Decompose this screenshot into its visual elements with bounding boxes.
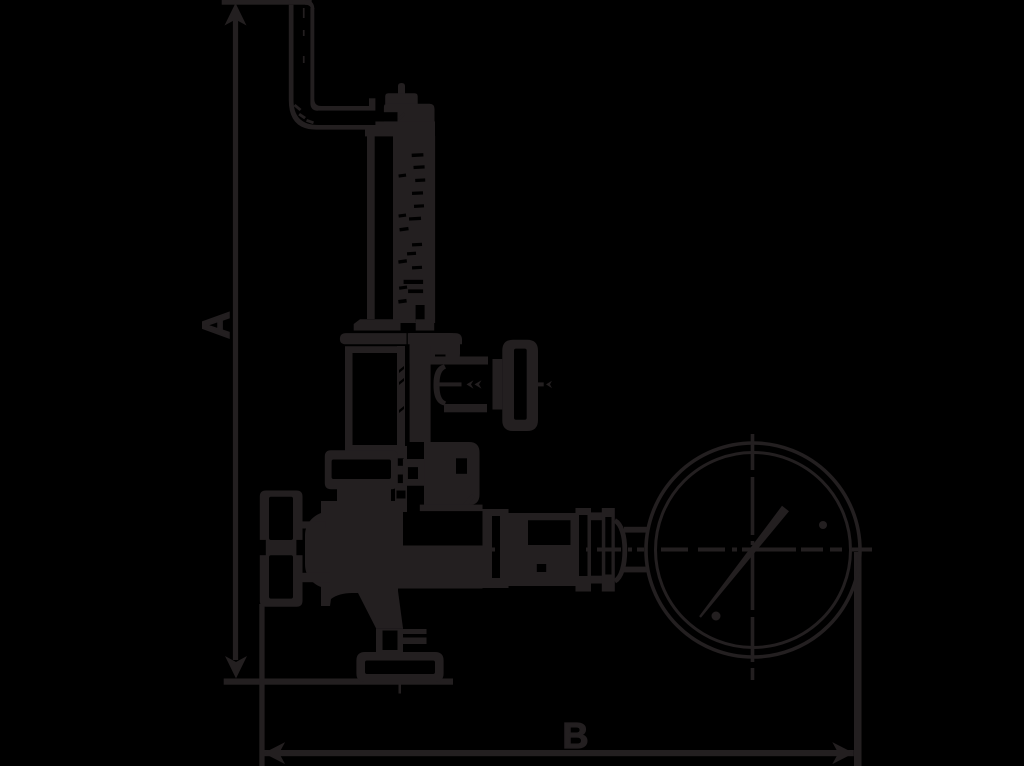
svg-text:B: B [563,715,589,756]
svg-text:A: A [196,311,238,338]
